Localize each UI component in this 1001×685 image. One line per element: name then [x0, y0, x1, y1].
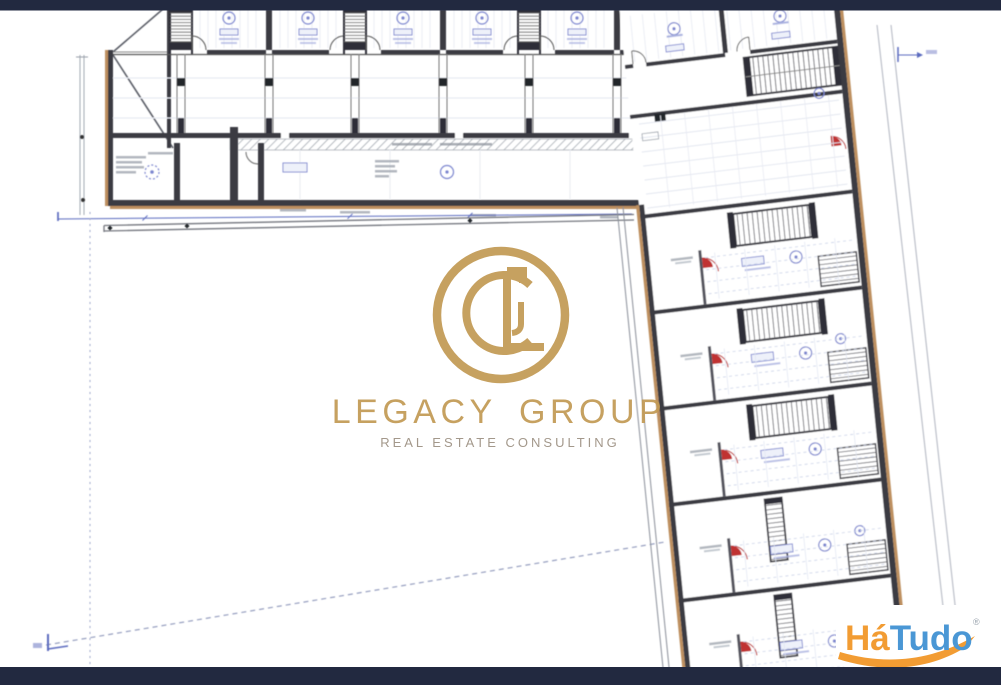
hatudo-ha-text: Há — [845, 619, 890, 658]
annotation-smudge — [340, 211, 370, 214]
label-box — [299, 29, 317, 35]
label-box — [568, 29, 586, 35]
hatudo-logo: HáTudo ® — [836, 605, 994, 668]
listing-photo-frame: LEGACY GROUP REAL ESTATE CONSULTING HáTu… — [0, 0, 1001, 685]
annotation-smudge — [375, 175, 389, 178]
legacy-brand-text: LEGACY GROUP — [332, 393, 666, 431]
annotation-smudge — [116, 171, 136, 174]
label-box — [220, 29, 238, 35]
hatudo-registered-mark: ® — [973, 617, 980, 627]
hatudo-tudo-text: Tudo — [890, 619, 973, 658]
annotation-smudge — [440, 143, 492, 146]
annotation-smudge — [116, 161, 142, 164]
label-box — [473, 29, 491, 35]
annotation-smudge — [280, 209, 306, 212]
annotation-smudge — [116, 166, 144, 169]
hatched-strip — [230, 139, 640, 150]
legacy-tagline-text: REAL ESTATE CONSULTING — [380, 435, 620, 450]
label-box — [394, 29, 412, 35]
annotation-smudge — [600, 216, 618, 219]
annotation-smudge — [375, 160, 399, 163]
top-navy-bar — [0, 0, 1001, 11]
annotation-smudge — [116, 156, 146, 159]
annotation-smudge — [148, 152, 173, 155]
bottom-navy-bar — [0, 667, 1001, 685]
hatudo-wordmark: HáTudo — [845, 619, 973, 658]
annotation-smudge — [375, 165, 395, 168]
label-box — [283, 163, 307, 172]
annotation-smudge — [392, 143, 432, 146]
annotation-smudge — [375, 170, 397, 173]
floorplan-image: LEGACY GROUP REAL ESTATE CONSULTING HáTu… — [0, 0, 1001, 685]
